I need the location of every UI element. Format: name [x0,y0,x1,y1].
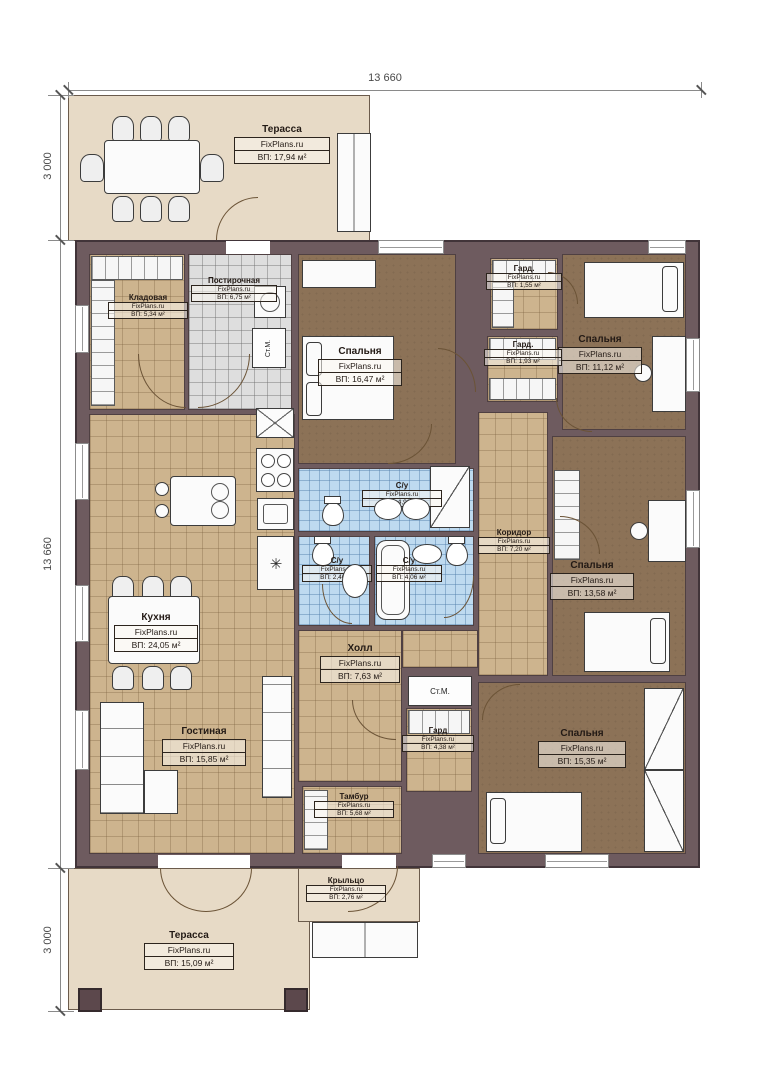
kitchen-island [170,476,236,526]
room-area: ВП: 15,35 м² [539,755,625,767]
room-info-box: FixPlans.ru ВП: 16,47 м² [318,359,402,386]
brand-text: FixPlans.ru [487,274,561,282]
washer-label: Ст.М. [266,339,273,356]
fridge-icon: ✳ [262,550,290,578]
brand-text: FixPlans.ru [315,802,393,810]
room-area: ВП: 24,05 м² [115,639,197,651]
pillow [306,382,322,416]
window [75,710,89,770]
brand-text: FixPlans.ru [109,303,187,311]
brand-text: FixPlans.ru [192,286,276,294]
terrace-post [78,988,102,1012]
washer-label: Ст.М. [430,687,450,696]
room-name: Тамбур [314,792,394,801]
chair [140,196,162,222]
brand-text: FixPlans.ru [235,138,329,151]
room-label-terrace-top: Терасса FixPlans.ru ВП: 17,94 м² [234,124,330,164]
room-name: Постирочная [191,276,277,285]
room-name: Кладовая [108,293,188,302]
sliding-wardrobe [644,688,684,770]
room-area: ВП: 15,85 м² [163,753,245,765]
sink-basin [402,498,430,520]
sofa-chaise [144,770,178,814]
room-area: ВП: 4,06 м² [377,574,441,581]
room-info-box: FixPlans.ru ВП: 24,05 м² [114,625,198,652]
room-label-wardrobe3: Гард FixPlans.ru ВП: 4,38 м² [402,726,474,752]
bar-stool [155,482,169,496]
pillow [650,618,666,664]
porch-steps [312,922,418,958]
chair [168,196,190,222]
room-info-box: FixPlans.ru ВП: 1,93 м² [484,349,562,366]
burner-icon [277,473,291,487]
brand-text: FixPlans.ru [403,736,473,744]
room-label-kitchen: Кухня FixPlans.ru ВП: 24,05 м² [114,612,198,652]
room-info-box: FixPlans.ru ВП: 7,20 м² [478,537,550,554]
room-info-box: FixPlans.ru ВП: 5,68 м² [314,801,394,818]
sliding-wardrobe [644,770,684,852]
desk [652,336,686,412]
wardrobe [302,260,376,288]
dimension-left-main-value: 13 660 [42,532,54,576]
chair [170,666,192,690]
chair [112,666,134,690]
chair [142,666,164,690]
room-area: ВП: 13,58 м² [551,587,633,599]
room-label-bathroom1: С/у FixPlans.ru ВП: 4,96 м² [362,481,442,507]
terrace-post [284,988,308,1012]
brand-text: FixPlans.ru [539,742,625,755]
toilet [446,542,468,566]
kitchen-sink [257,498,294,530]
floor-plan-canvas: 13 660 3 000 13 660 3 000 [0,0,763,1080]
dimension-top-value: 13 660 [350,72,420,84]
room-area: ВП: 5,34 м² [109,311,187,318]
room-name: Спальня [558,334,642,346]
room-label-living: Гостиная FixPlans.ru ВП: 15,85 м² [162,726,246,766]
vent-shaft [256,408,294,438]
room-area: ВП: 1,93 м² [485,358,561,365]
room-info-box: FixPlans.ru ВП: 7,63 м² [320,656,400,683]
dining-table [104,140,200,194]
brand-text: FixPlans.ru [319,360,401,373]
room-area: ВП: 6,75 м² [192,294,276,301]
door-gap-living-terrace [158,855,250,868]
sink-basin [374,498,402,520]
dimension-left-top-value: 3 000 [42,146,54,186]
room-name: Гард. [486,264,562,273]
room-label-porch: Крыльцо FixPlans.ru ВП: 2,76 м² [306,876,386,902]
brand-text: FixPlans.ru [363,491,441,499]
room-name: Кухня [114,612,198,624]
room-label-wardrobe1: Гард. FixPlans.ru ВП: 1,55 м² [486,264,562,290]
closet-shelves [489,378,556,400]
closet-shelves [91,256,183,280]
brand-text: FixPlans.ru [115,626,197,639]
room-info-box: FixPlans.ru ВП: 13,58 м² [550,573,634,600]
window [75,305,89,353]
brand-text: FixPlans.ru [559,348,641,361]
room-label-laundry: Постирочная FixPlans.ru ВП: 6,75 м² [191,276,277,302]
cooktop [256,448,294,492]
burner-icon [277,454,291,468]
dimension-left-bottom-value: 3 000 [42,920,54,960]
chair [200,154,224,182]
room-label-storage: Кладовая FixPlans.ru ВП: 5,34 м² [108,293,188,319]
sofa [100,702,144,814]
room-area: ВП: 11,12 м² [559,361,641,373]
brand-text: FixPlans.ru [145,944,233,957]
room-name: Крыльцо [306,876,386,885]
desk-chair [630,522,648,540]
room-area: ВП: 17,94 м² [235,151,329,163]
room-name: С/у [362,481,442,490]
pillow [490,798,506,844]
window [686,338,700,392]
window [648,240,686,254]
room-name: Терасса [144,930,234,942]
room-name: Холл [320,643,400,655]
sink-basin [342,564,368,598]
room-name: Терасса [234,124,330,136]
room-label-terrace-bottom: Терасса FixPlans.ru ВП: 15,09 м² [144,930,234,970]
room-label-hall: Холл FixPlans.ru ВП: 7,63 м² [320,643,400,683]
room-area: ВП: 15,09 м² [145,957,233,969]
window [75,443,89,500]
room-info-box: FixPlans.ru ВП: 1,55 м² [486,273,562,290]
room-info-box: FixPlans.ru ВП: 6,75 м² [191,285,277,302]
door-gap-terrace [226,241,270,254]
room-label-vestibule: Тамбур FixPlans.ru ВП: 5,68 м² [314,792,394,818]
room-name: Спальня [318,346,402,358]
room-info-box: FixPlans.ru ВП: 5,34 м² [108,302,188,319]
room-info-box: FixPlans.ru ВП: 17,94 м² [234,137,330,164]
room-name: Спальня [538,728,626,740]
room-label-bedroom2: Спальня FixPlans.ru ВП: 11,12 м² [558,334,642,374]
room-info-box: FixPlans.ru ВП: 2,76 м² [306,885,386,902]
brand-text: FixPlans.ru [551,574,633,587]
room-name: Гард [402,726,474,735]
bar-stool [155,504,169,518]
pillow [662,266,678,312]
dimension-line-left [60,95,61,1012]
room-info-box: FixPlans.ru ВП: 11,12 м² [558,347,642,374]
room-info-box: FixPlans.ru ВП: 4,06 м² [376,565,442,582]
burner-icon [261,454,275,468]
brand-text: FixPlans.ru [321,657,399,670]
chair [168,116,190,142]
room-area: ВП: 2,76 м² [307,894,385,901]
room-area: ВП: 4,38 м² [403,744,473,751]
door-gap-entrance [342,855,396,868]
room-info-box: FixPlans.ru ВП: 15,09 м² [144,943,234,970]
window [378,240,444,254]
room-label-bedroom4: Спальня FixPlans.ru ВП: 15,35 м² [538,728,626,768]
window [75,585,89,642]
washer-label-box: Ст.М. [408,676,472,706]
chair [112,116,134,142]
room-label-corridor: Коридор FixPlans.ru ВП: 7,20 м² [478,528,550,554]
room-area: ВП: 5,68 м² [315,810,393,817]
room-info-box: FixPlans.ru ВП: 15,85 м² [162,739,246,766]
room-floor-hall-strip [402,630,478,668]
room-area: ВП: 16,47 м² [319,373,401,385]
room-area: ВП: 7,20 м² [479,546,549,553]
window [432,854,466,868]
room-name: Гостиная [162,726,246,738]
brand-text: FixPlans.ru [479,538,549,546]
brand-text: FixPlans.ru [307,886,385,894]
stairs-symbol [337,133,371,232]
room-area: ВП: 7,63 м² [321,670,399,682]
room-label-bedroom3: Спальня FixPlans.ru ВП: 13,58 м² [550,560,634,600]
room-name: С/у [302,556,372,565]
brand-text: FixPlans.ru [485,350,561,358]
desk [648,500,686,562]
room-info-box: FixPlans.ru ВП: 15,35 м² [538,741,626,768]
room-info-box: FixPlans.ru ВП: 4,38 м² [402,735,474,752]
room-name: Гард. [484,340,562,349]
burner-icon [261,473,275,487]
brand-text: FixPlans.ru [377,566,441,574]
chair [112,196,134,222]
tv-cabinet [262,676,292,798]
room-area: ВП: 1,55 м² [487,282,561,289]
dimension-line-top [68,90,702,91]
washer-label-box: Ст.М. [252,328,286,368]
room-label-bedroom1: Спальня FixPlans.ru ВП: 16,47 м² [318,346,402,386]
chair [140,116,162,142]
sink-basin [412,544,442,564]
brand-text: FixPlans.ru [163,740,245,753]
room-label-wardrobe2: Гард. FixPlans.ru ВП: 1,93 м² [484,340,562,366]
chair [80,154,104,182]
room-name: Спальня [550,560,634,572]
toilet [322,502,344,526]
window [545,854,609,868]
room-name: Коридор [478,528,550,537]
window [686,490,700,548]
